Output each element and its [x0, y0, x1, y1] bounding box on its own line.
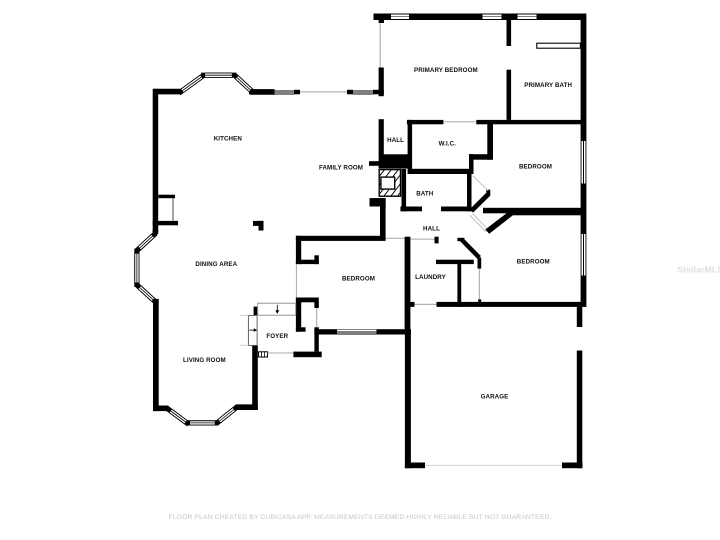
svg-text:LIVING ROOM: LIVING ROOM	[183, 357, 226, 364]
svg-text:BEDROOM: BEDROOM	[342, 275, 375, 282]
svg-text:DINING AREA: DINING AREA	[195, 261, 237, 268]
svg-text:HALL: HALL	[423, 226, 440, 233]
svg-text:StellarMLS: StellarMLS	[677, 265, 720, 275]
svg-text:BEDROOM: BEDROOM	[517, 259, 550, 266]
svg-text:W.I.C.: W.I.C.	[439, 141, 457, 148]
svg-text:LAUNDRY: LAUNDRY	[415, 274, 446, 281]
svg-text:KITCHEN: KITCHEN	[214, 135, 243, 142]
svg-text:FAMILY ROOM: FAMILY ROOM	[319, 164, 363, 171]
svg-text:BEDROOM: BEDROOM	[519, 163, 552, 170]
svg-text:PRIMARY BEDROOM: PRIMARY BEDROOM	[414, 67, 478, 74]
svg-text:FLOOR PLAN CREATED BY CUBICASA: FLOOR PLAN CREATED BY CUBICASA APP. MEAS…	[169, 514, 552, 521]
svg-text:BATH: BATH	[416, 191, 434, 198]
svg-text:FOYER: FOYER	[266, 333, 288, 340]
svg-text:PRIMARY BATH: PRIMARY BATH	[524, 82, 572, 89]
svg-text:GARAGE: GARAGE	[481, 394, 509, 401]
svg-text:HALL: HALL	[387, 137, 404, 144]
